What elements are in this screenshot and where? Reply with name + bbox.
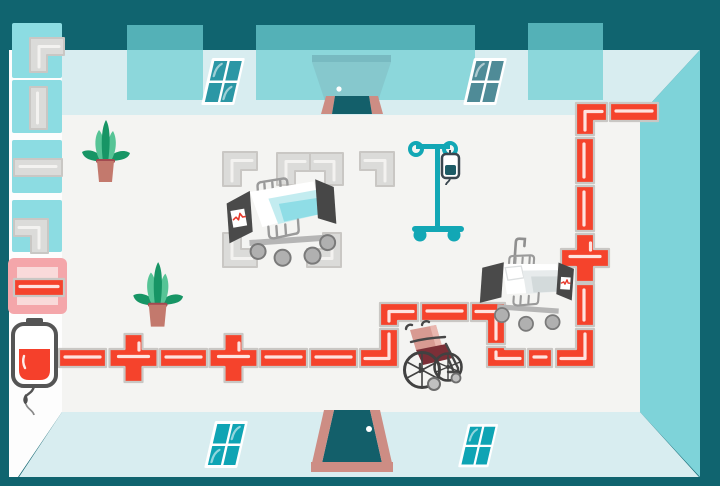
inventory-elbow-left-down[interactable] — [12, 200, 62, 253]
inventory-straight-vertical[interactable] — [12, 80, 62, 133]
bottom-door — [311, 410, 393, 472]
wheelchair-caster — [428, 378, 440, 390]
bed-wheel — [320, 235, 336, 251]
iv-wheel — [448, 229, 461, 242]
bed-wheel — [250, 243, 266, 259]
bed-wheel — [494, 308, 509, 323]
bottom-door-sill — [311, 462, 393, 472]
pot — [97, 161, 114, 182]
top-door — [312, 55, 391, 114]
top-door-opening — [332, 96, 372, 114]
game-stage — [0, 0, 720, 486]
iv-wheel — [414, 229, 427, 242]
top-door-knob — [336, 86, 341, 91]
selected-pipe-piece[interactable] — [14, 279, 64, 296]
iv-top-bar — [416, 144, 450, 149]
wheelchair-caster — [452, 374, 461, 383]
bed-wheel — [545, 315, 560, 330]
wheel-hub — [420, 368, 425, 373]
iv-bag-fluid — [445, 165, 456, 175]
bed-wheel — [518, 316, 533, 331]
wall-panel — [528, 23, 603, 100]
bed-badge — [560, 277, 571, 290]
wall-panel — [127, 25, 203, 100]
pot — [149, 305, 167, 327]
wheel-hub — [446, 365, 450, 369]
scene-canvas — [0, 0, 720, 486]
bed-badge — [230, 209, 247, 228]
bed-wheel — [274, 249, 291, 266]
inventory-straight-horizontal[interactable] — [12, 140, 62, 193]
selected-tile[interactable] — [8, 258, 67, 314]
inventory-elbow-right-down[interactable] — [12, 23, 64, 78]
bed-wheel — [304, 247, 321, 264]
iv-pole — [435, 144, 440, 228]
bottom-door-knob — [366, 426, 372, 432]
top-door-lintel — [312, 55, 391, 62]
